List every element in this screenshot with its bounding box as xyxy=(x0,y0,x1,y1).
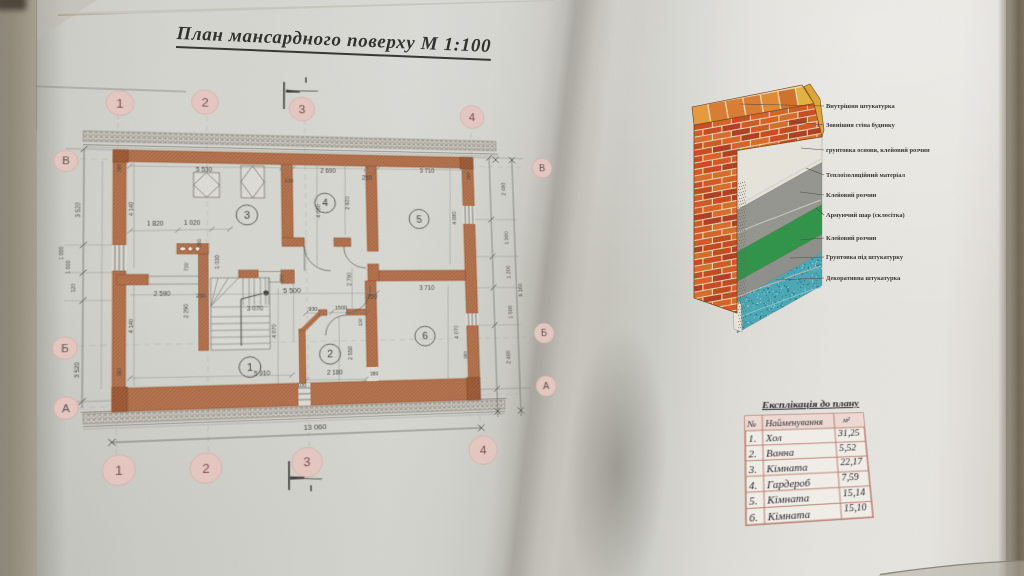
svg-text:1.: 1. xyxy=(748,434,756,445)
svg-text:15,14: 15,14 xyxy=(842,487,866,499)
svg-text:Експлікація до плану: Експлікація до плану xyxy=(761,399,860,411)
svg-text:31,25: 31,25 xyxy=(837,429,860,439)
svg-text:Гардероб: Гардероб xyxy=(766,477,811,491)
svg-text:Кімната: Кімната xyxy=(765,462,808,475)
svg-text:22,17: 22,17 xyxy=(840,457,864,468)
svg-text:5.: 5. xyxy=(749,496,758,508)
svg-text:5,52: 5,52 xyxy=(839,443,857,453)
svg-text:6.: 6. xyxy=(749,512,758,525)
svg-text:7,59: 7,59 xyxy=(841,473,860,484)
svg-text:м²: м² xyxy=(842,416,851,424)
svg-text:Хол: Хол xyxy=(765,433,782,444)
svg-text:Найменування: Найменування xyxy=(764,418,823,429)
svg-text:4.: 4. xyxy=(749,480,758,492)
svg-text:3.: 3. xyxy=(748,464,757,476)
svg-text:15,10: 15,10 xyxy=(844,503,868,515)
svg-text:№: № xyxy=(746,420,756,430)
svg-text:Ванна: Ванна xyxy=(766,448,795,460)
svg-text:2.: 2. xyxy=(748,449,756,460)
svg-text:Внутрішня штукатурка: Внутрішня штукатурка xyxy=(826,103,895,110)
